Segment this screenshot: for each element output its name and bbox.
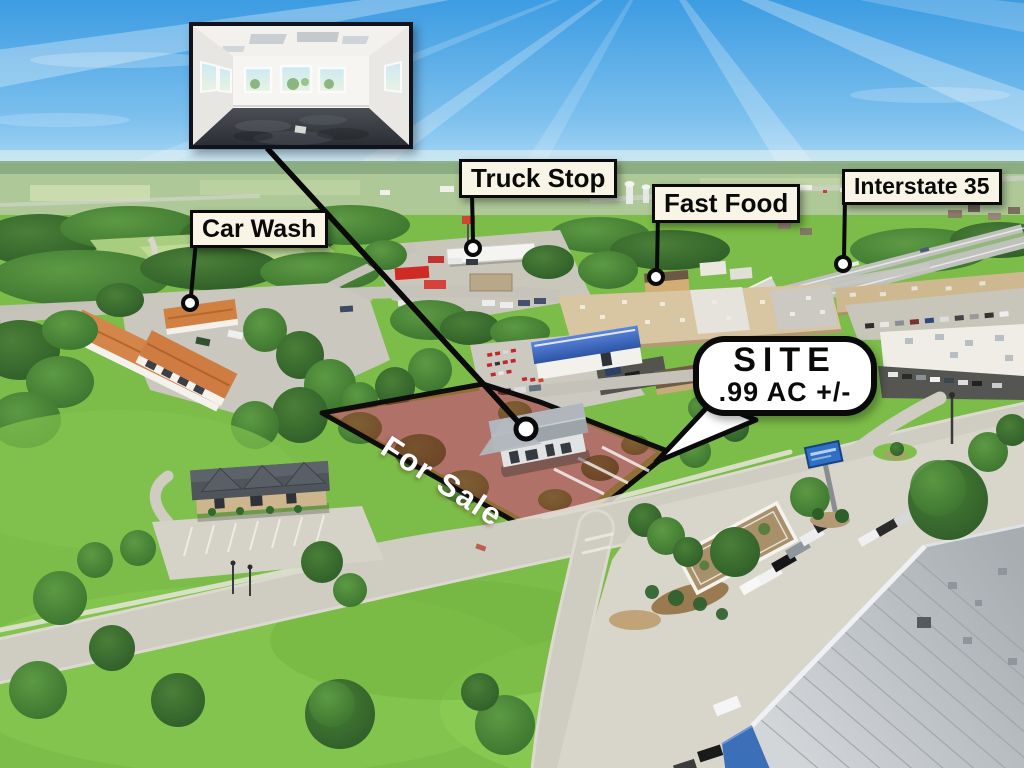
truck-stop-marker-circle	[466, 241, 480, 255]
site-callout-title: SITE	[733, 343, 837, 377]
label-car-wash: Car Wash	[190, 210, 328, 248]
car-wash-leader-line	[191, 241, 196, 296]
interstate-35-marker-circle	[836, 257, 850, 271]
interstate-35-leader-line	[844, 199, 845, 257]
site-marker-circle	[516, 419, 536, 439]
site-callout-bubble: SITE .99 AC +/-	[693, 336, 877, 416]
site-callout-acreage: .99 AC +/-	[719, 377, 852, 408]
aerial-photo: For Sale	[0, 0, 1024, 768]
label-fast-food: Fast Food	[652, 184, 800, 223]
fast-food-marker-circle	[649, 270, 663, 284]
inset-photo-interior	[189, 22, 413, 149]
label-truck-stop: Truck Stop	[459, 159, 617, 198]
label-interstate-35: Interstate 35	[842, 169, 1002, 205]
car-wash-marker-circle	[183, 296, 197, 310]
truck-stop-leader-line	[472, 194, 473, 240]
